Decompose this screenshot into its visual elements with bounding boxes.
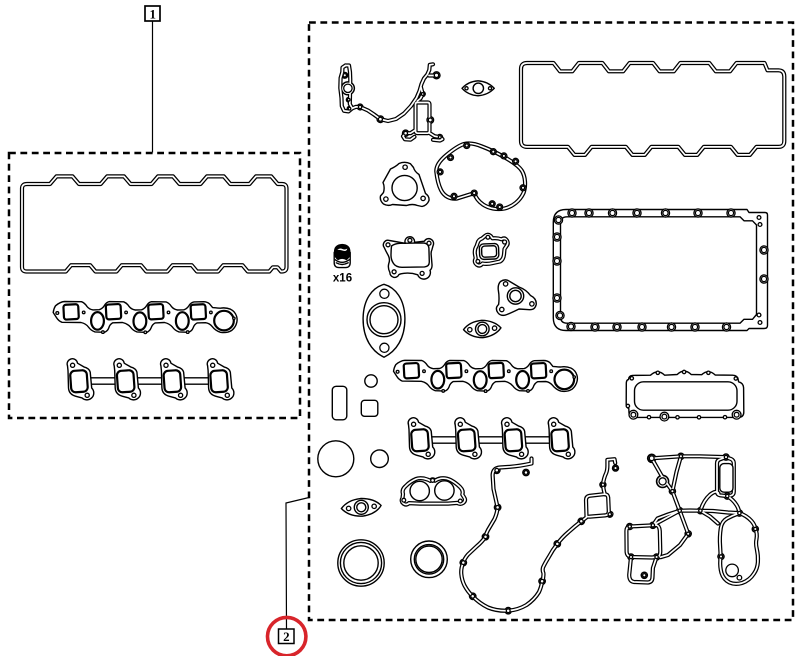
svg-text:1: 1 (149, 6, 156, 21)
svg-text:x16: x16 (333, 273, 352, 285)
svg-text:2: 2 (283, 629, 290, 644)
